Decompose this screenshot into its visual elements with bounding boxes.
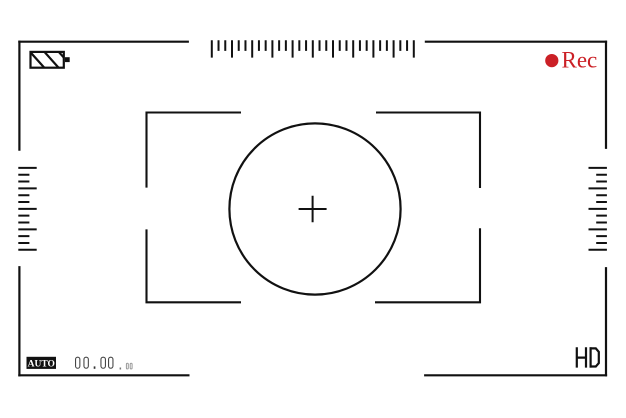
svg-text:Rec: Rec (562, 48, 598, 73)
svg-text:AUTO: AUTO (28, 360, 55, 370)
